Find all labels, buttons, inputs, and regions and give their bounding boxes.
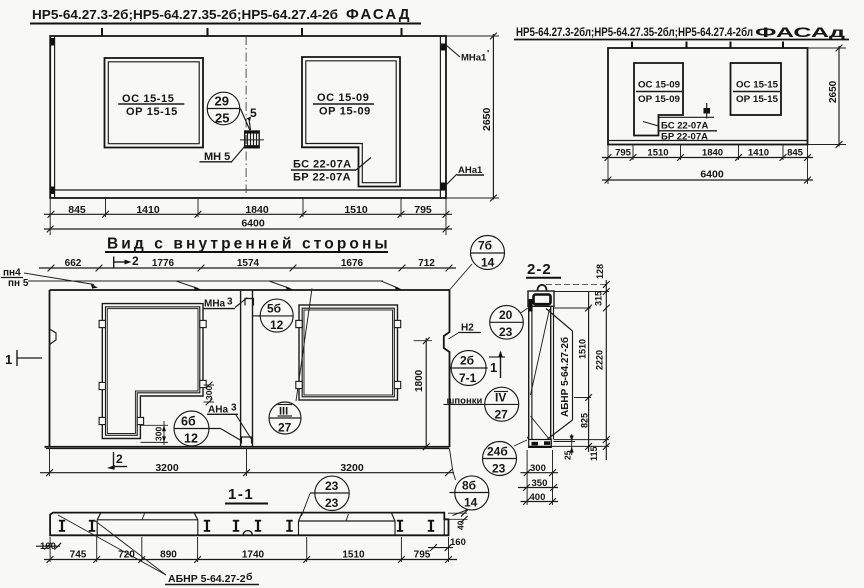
svg-text:2б: 2б [460, 354, 474, 368]
svg-text:МНа: МНа [204, 299, 226, 310]
svg-text:23: 23 [499, 325, 513, 339]
svg-text:2: 2 [132, 254, 139, 268]
svg-text:Н2: Н2 [461, 323, 474, 334]
svg-text:1840: 1840 [702, 148, 723, 159]
svg-text:2650: 2650 [481, 107, 493, 131]
svg-text:БС 22-07А: БС 22-07А [661, 121, 709, 132]
svg-text:300: 300 [530, 463, 546, 474]
svg-text:890: 890 [160, 550, 177, 561]
svg-text:БР 22-07А: БР 22-07А [661, 132, 708, 143]
svg-text:795: 795 [414, 550, 431, 561]
svg-text:IV: IV [495, 391, 506, 405]
svg-text:1410: 1410 [136, 204, 160, 216]
svg-text:400: 400 [530, 492, 546, 503]
svg-text:3200: 3200 [340, 462, 364, 474]
svg-text:25: 25 [563, 450, 573, 460]
svg-text:3: 3 [227, 297, 233, 308]
svg-text:350: 350 [532, 478, 548, 489]
svg-text:АБНР 5-64.27-2б: АБНР 5-64.27-2б [559, 337, 571, 417]
svg-text:29: 29 [215, 94, 229, 109]
svg-text:845: 845 [787, 148, 804, 159]
svg-text:1510: 1510 [647, 148, 668, 159]
svg-text:6400: 6400 [700, 169, 724, 181]
svg-text:23: 23 [492, 462, 506, 476]
svg-text:115: 115 [589, 446, 599, 461]
svg-text:пн 5: пн 5 [8, 278, 29, 289]
svg-text:2: 2 [116, 452, 123, 466]
svg-text:27: 27 [278, 421, 292, 435]
svg-text:23: 23 [325, 496, 339, 510]
svg-text:662: 662 [65, 258, 82, 269]
svg-text:7б: 7б [478, 239, 492, 253]
svg-text:25: 25 [215, 111, 229, 126]
svg-text:5б: 5б [267, 302, 281, 316]
svg-text:712: 712 [418, 258, 435, 269]
svg-text:6б: 6б [181, 415, 196, 429]
svg-text:5: 5 [250, 106, 257, 120]
svg-text:ОР 15-15: ОР 15-15 [736, 94, 779, 105]
svg-text:1510: 1510 [342, 550, 365, 561]
svg-text:720: 720 [118, 550, 135, 561]
svg-text:745: 745 [70, 550, 87, 561]
svg-text:2650: 2650 [828, 80, 839, 103]
svg-text:1776: 1776 [152, 258, 175, 269]
svg-text:300: 300 [154, 427, 164, 441]
svg-text:24б: 24б [487, 445, 508, 459]
svg-text:1740: 1740 [242, 550, 265, 561]
svg-text:б: б [246, 571, 253, 583]
svg-text:1410: 1410 [748, 148, 769, 159]
svg-text:НР5-64.27.3-2б;НР5-64.27.35-2б: НР5-64.27.3-2б;НР5-64.27.35-2б;НР5-64.27… [32, 7, 338, 22]
svg-text:НР5-64.27.3-2бл;НР5-64.27.35-2: НР5-64.27.3-2бл;НР5-64.27.35-2бл;НР5-64.… [516, 27, 753, 39]
svg-text:1510: 1510 [578, 339, 588, 359]
svg-text:12: 12 [184, 432, 198, 446]
svg-text:27: 27 [495, 408, 509, 422]
svg-text:пн4: пн4 [3, 268, 21, 279]
svg-text:ОР 15-09: ОР 15-09 [638, 94, 680, 105]
svg-text:3200: 3200 [155, 462, 179, 474]
svg-text:ОС 15-09: ОС 15-09 [638, 80, 680, 91]
svg-text:14: 14 [481, 256, 495, 270]
svg-text:23: 23 [325, 479, 339, 493]
svg-text:АБНР 5-64.27-2: АБНР 5-64.27-2 [168, 573, 246, 585]
svg-text:20: 20 [499, 308, 513, 322]
svg-text:1-1: 1-1 [228, 486, 254, 503]
svg-text:1: 1 [5, 352, 12, 367]
svg-text:2220: 2220 [595, 350, 605, 370]
svg-text:БС 22-07А: БС 22-07А [293, 159, 351, 171]
svg-text:ОС 15-15: ОС 15-15 [122, 93, 175, 105]
svg-text:1840: 1840 [245, 204, 269, 216]
svg-text:160: 160 [450, 537, 466, 548]
svg-text:14: 14 [464, 496, 478, 510]
svg-text:1510: 1510 [344, 204, 368, 216]
svg-text:1800: 1800 [414, 369, 425, 392]
svg-text:825: 825 [579, 413, 589, 428]
svg-text:БР 22-07А: БР 22-07А [293, 172, 351, 184]
svg-text:12: 12 [270, 318, 284, 332]
svg-text:1: 1 [490, 360, 497, 375]
svg-text:8б: 8б [462, 479, 476, 493]
svg-text:ОС 15-15: ОС 15-15 [736, 80, 779, 91]
svg-text:1574: 1574 [237, 258, 260, 269]
svg-text:160: 160 [40, 541, 56, 552]
svg-text:7-1: 7-1 [459, 371, 477, 385]
svg-text:128: 128 [595, 264, 605, 279]
svg-text:Вид с внутренней стороны: Вид с внутренней стороны [107, 236, 391, 253]
svg-text:315: 315 [594, 291, 604, 306]
svg-text:': ' [487, 49, 489, 60]
svg-text:40: 40 [456, 520, 466, 530]
svg-text:845: 845 [68, 204, 86, 216]
svg-text:6400: 6400 [241, 218, 265, 230]
svg-text:795: 795 [414, 204, 432, 216]
svg-text:ОС 15-09: ОС 15-09 [317, 92, 370, 104]
svg-text:МНа1: МНа1 [461, 53, 487, 64]
svg-text:2-2: 2-2 [527, 261, 552, 278]
svg-text:ОР 15-15: ОР 15-15 [126, 106, 178, 118]
svg-text:ФАСАд: ФАСАд [755, 25, 846, 40]
svg-text:300: 300 [204, 386, 214, 400]
svg-text:795: 795 [615, 148, 632, 159]
svg-text:ОР 15-09: ОР 15-09 [319, 106, 371, 118]
svg-text:1676: 1676 [341, 258, 364, 269]
svg-text:ФАСАД: ФАСАД [346, 6, 411, 23]
svg-text:3: 3 [231, 403, 237, 414]
